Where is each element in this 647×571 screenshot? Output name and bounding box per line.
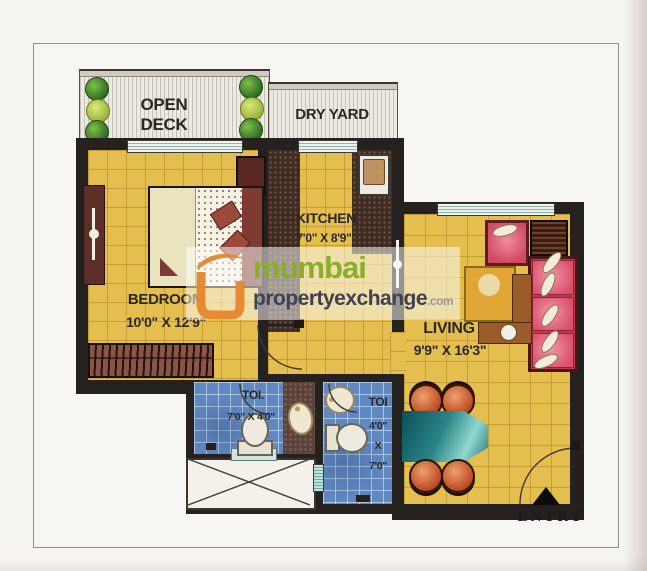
lamp-icon [500, 324, 517, 341]
dining-table-icon [402, 411, 488, 462]
kitchen-label: KITCHEN [288, 210, 364, 226]
coffee-table-icon [464, 266, 516, 322]
table-decor [478, 274, 500, 296]
living-label: LIVING [413, 320, 485, 338]
duct-box [186, 458, 316, 510]
entry-arrow-icon [532, 487, 560, 505]
dry-yard-label: DRY YARD [284, 106, 380, 123]
plant-icon [239, 75, 263, 99]
tv-cabinet-icon [530, 220, 568, 256]
sofa-cushion [532, 260, 574, 295]
living-top-window [437, 203, 555, 216]
sofa-cushion [532, 297, 574, 332]
mumbai-propertyexchange-logo [189, 248, 249, 326]
blanket-fold [160, 258, 178, 276]
watermark-brand-top: mumbai [253, 252, 366, 283]
entry-label: ENTRY [514, 509, 588, 526]
cushion-leaf [491, 222, 519, 239]
sofa-cushion [532, 333, 574, 368]
sink-faucet-icon [378, 170, 383, 175]
single-sofa-icon [485, 220, 529, 266]
floor-trap-icon [356, 495, 370, 502]
cushion-leaf [538, 301, 562, 329]
toilet-right-label: TOI [358, 396, 398, 410]
scan-shadow-right [623, 0, 647, 571]
three-seat-sofa-icon [528, 256, 578, 372]
floor-plan-scan: OPEN DECK DRY YARD KITCHEN 7'0" X 8'9" B… [0, 0, 647, 571]
open-deck-label-line2: DECK [118, 115, 210, 135]
toilet-right-dim-h: 7'0" [358, 460, 398, 472]
plant-icon [85, 77, 109, 101]
toilet-right-x: X [358, 440, 398, 452]
dining-chair-icon [409, 459, 443, 493]
dry-yard-top-rail [269, 84, 397, 90]
watermark-brand-bottom: propertyexchange.com [253, 288, 453, 309]
cushion-leaf [532, 351, 560, 372]
window-knob [89, 229, 99, 239]
cushion-leaf [538, 328, 562, 356]
toilet-left-label: TOI. [230, 389, 276, 403]
floor-trap-icon [206, 443, 216, 450]
living-dims: 9'9" X 16'3" [400, 342, 500, 358]
toilet-right-dim-w: 4'0" [358, 420, 398, 432]
scan-shadow-bottom [0, 557, 647, 571]
deck-top-rail [80, 71, 269, 77]
open-deck-label-line1: OPEN [118, 95, 210, 115]
bedroom-top-window [127, 140, 243, 153]
watermark-brand-suffix: .com [427, 294, 453, 308]
side-unit-icon [512, 274, 532, 328]
open-deck-label: OPEN DECK [118, 95, 210, 134]
kitchen-top-window [298, 140, 358, 153]
kitchen-dims: 7'0" X 8'9" [282, 232, 366, 246]
wash-basin-icon [325, 386, 355, 414]
watermark-brand-name: propertyexchange [253, 287, 427, 310]
dining-chair-icon [441, 459, 475, 493]
toilet-left-dims: 7'0" X 4'0" [204, 411, 298, 423]
basin-faucet-icon [329, 397, 334, 402]
duct-vent [313, 464, 324, 492]
kitchen-sink-icon [358, 154, 390, 196]
wardrobe-icon [88, 343, 214, 378]
cushion-leaf [538, 270, 559, 298]
